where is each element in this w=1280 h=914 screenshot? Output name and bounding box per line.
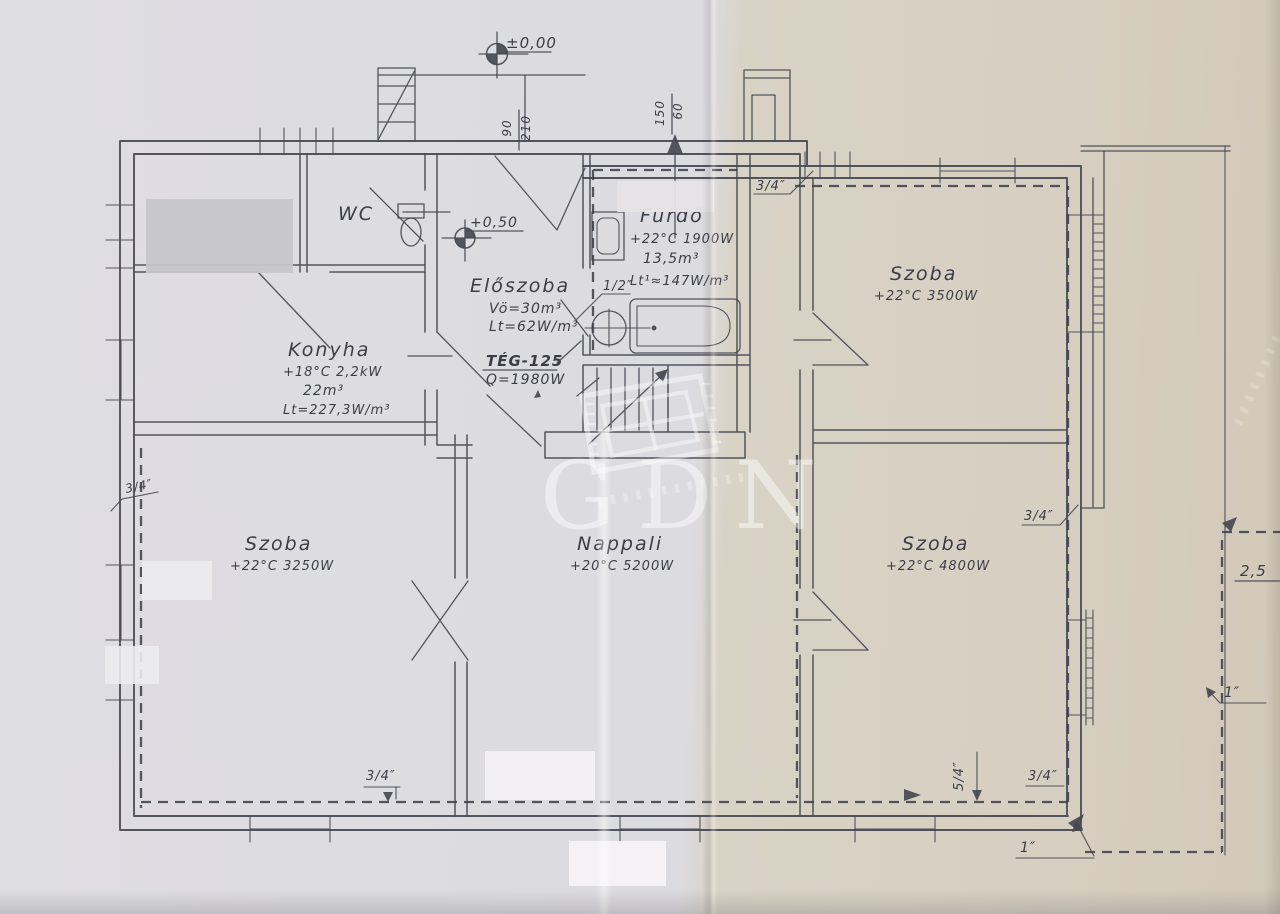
level-entry-label: +0,50 <box>470 215 518 231</box>
bathtub <box>630 299 740 353</box>
vent-width-dim: 150 <box>653 100 667 126</box>
pipe-label-54-rotated: 5/4″ <box>952 761 967 791</box>
toilet-tank <box>398 204 424 218</box>
room-label-wc: WC <box>338 203 374 225</box>
boiler-model: TÉG-125 <box>486 351 563 370</box>
right-terrace <box>1081 146 1230 855</box>
level-ground-label: ±0,00 <box>506 34 557 52</box>
nappali-heat: +20°C 5200W <box>570 559 674 574</box>
pipe-label-34-bottom: 3/4″ <box>366 769 396 784</box>
konyha-load: Lt=227,3W/m³ <box>283 403 391 418</box>
room-label-konyha: Konyha <box>288 339 370 361</box>
bathtub-inner <box>637 306 730 346</box>
room-label-szoba-bal: Szoba <box>245 533 312 555</box>
gdn-watermark-text: GDN <box>540 442 839 551</box>
redaction-box-bottom-center <box>485 751 595 800</box>
vent-arrow <box>667 134 683 154</box>
pipe-label-34-left: 3/4″ <box>124 476 154 495</box>
pipe-label-34-top: 3/4″ <box>756 179 786 194</box>
boiler-label: TÉG-125 Q=1980W <box>483 341 581 398</box>
szoba-jobb-heat: +22°C 4800W <box>886 559 990 574</box>
pipe-arrow-34-bottom <box>383 792 393 802</box>
redaction-box-left-low <box>105 646 159 684</box>
furdo-volume: 13,5m³ <box>643 251 699 267</box>
pipe-arrow-right-edge <box>1222 517 1237 532</box>
redaction-box-below-wall <box>569 841 666 886</box>
furdo-load: Lt¹≈147W/m³ <box>630 274 729 289</box>
pipe-label-34-right: 3/4″ <box>1024 509 1054 524</box>
pipe-label-1-bottom-right: 1″ <box>1020 840 1036 856</box>
pipe-label-34-bottom-right: 3/4″ <box>1028 769 1058 784</box>
basin-drain-dot <box>652 326 657 331</box>
szoba-felso-heat: +22°C 3500W <box>874 289 978 304</box>
washbasin-inner <box>597 218 619 254</box>
pipe-label-12-bath: 1/2″ <box>603 279 633 294</box>
floorplan-drawing: ±0,00 +0,50 90 210 150 60 2,5 WC Előszob… <box>0 0 1280 914</box>
konyha-volume: 22m³ <box>303 383 344 399</box>
redaction-box-bathroom <box>617 181 714 212</box>
furdo-heat: +22°C 1900W <box>630 232 734 247</box>
right-offset-dim: 2,5 <box>1240 562 1267 580</box>
room-label-szoba-jobb: Szoba <box>902 533 969 555</box>
konyha-heat: +18°C 2,2kW <box>283 365 382 380</box>
eloszoba-load: Lt=62W/m³ <box>489 319 579 335</box>
pipe-flow-arrow <box>904 789 921 801</box>
boiler-tick <box>534 390 541 398</box>
room-label-szoba-felso: Szoba <box>890 263 957 285</box>
room-label-eloszoba: Előszoba <box>470 275 570 297</box>
vent-height-dim: 60 <box>671 102 685 119</box>
redaction-box-pantry <box>146 199 293 273</box>
eloszoba-volume: Vö=30m³ <box>489 301 562 317</box>
gdn-filmstrip-edge <box>1238 330 1280 424</box>
toilet-bowl <box>401 218 421 246</box>
boiler-output: Q=1980W <box>486 372 565 388</box>
redaction-box-left-mid <box>142 561 212 600</box>
door-width-dim: 90 <box>500 119 514 136</box>
door-height-dim: 210 <box>519 115 533 141</box>
szoba-bal-heat: +22°C 3250W <box>230 559 334 574</box>
pipe-label-1-right-edge: 1″ <box>1224 685 1240 701</box>
scanned-floorplan-page: ±0,00 +0,50 90 210 150 60 2,5 WC Előszob… <box>0 0 1280 914</box>
gdn-watermark: GDN <box>540 330 1280 551</box>
